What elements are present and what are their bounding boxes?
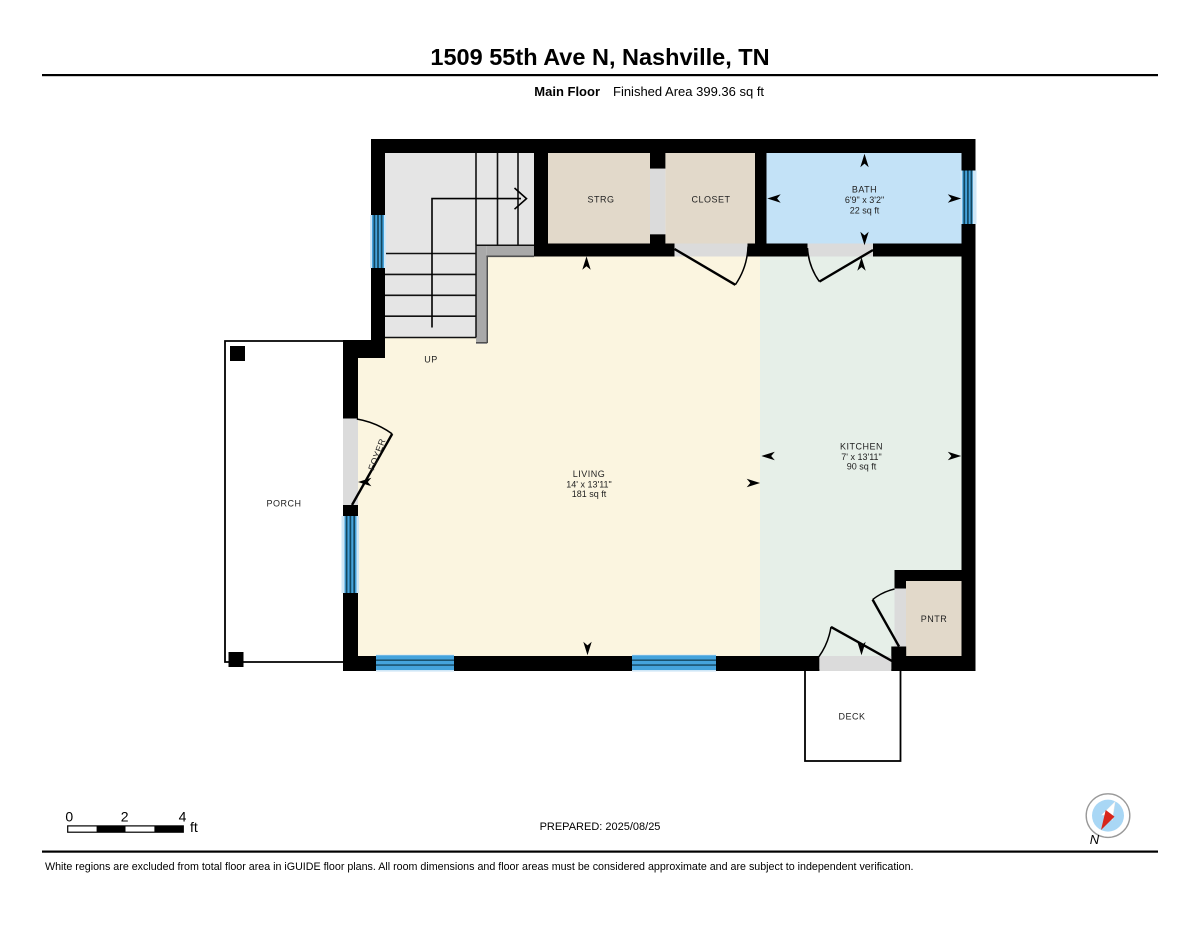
svg-text:STRG: STRG (587, 195, 614, 205)
svg-text:7' x 13'11": 7' x 13'11" (841, 452, 882, 462)
svg-text:14' x 13'11": 14' x 13'11" (566, 480, 612, 490)
svg-text:Main Floor: Main Floor (534, 84, 600, 99)
svg-text:PNTR: PNTR (921, 614, 948, 624)
svg-text:LIVING: LIVING (573, 469, 606, 479)
svg-text:CLOSET: CLOSET (691, 195, 730, 205)
svg-text:181 sq ft: 181 sq ft (572, 489, 607, 499)
svg-text:DECK: DECK (838, 712, 865, 722)
svg-text:4: 4 (179, 809, 187, 825)
svg-text:UP: UP (424, 355, 438, 365)
svg-text:KITCHEN: KITCHEN (840, 442, 883, 452)
svg-text:BATH: BATH (852, 185, 877, 195)
svg-text:90 sq ft: 90 sq ft (847, 462, 877, 472)
svg-text:PREPARED: 2025/08/25: PREPARED: 2025/08/25 (540, 821, 661, 833)
svg-text:6'9" x 3'2": 6'9" x 3'2" (845, 195, 884, 205)
svg-text:N: N (1090, 832, 1100, 847)
svg-text:1509 55th Ave N, Nashville, TN: 1509 55th Ave N, Nashville, TN (430, 44, 769, 70)
svg-text:0: 0 (65, 809, 73, 825)
svg-text:White regions are excluded fro: White regions are excluded from total fl… (45, 861, 914, 873)
svg-text:ft: ft (190, 819, 198, 835)
svg-text:PORCH: PORCH (266, 499, 301, 509)
svg-text:22 sq ft: 22 sq ft (850, 206, 880, 216)
svg-text:Finished Area 399.36 sq ft: Finished Area 399.36 sq ft (613, 84, 764, 99)
svg-text:2: 2 (121, 809, 129, 825)
